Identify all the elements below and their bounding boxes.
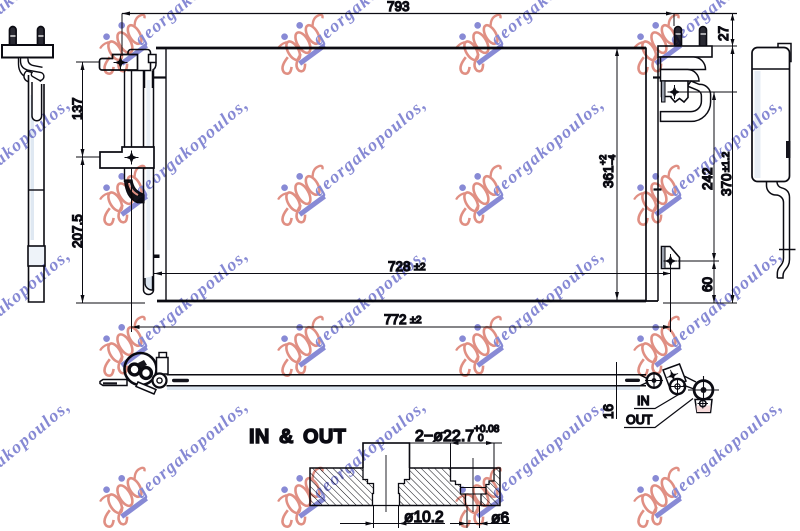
svg-text:IN: IN xyxy=(637,394,650,408)
svg-text:2−ø22.7: 2−ø22.7 xyxy=(415,428,474,445)
svg-text:georgakopoulos,: georgakopoulos, xyxy=(130,0,252,50)
svg-text:−4: −4 xyxy=(607,155,617,165)
svg-text:georgakopoulos,: georgakopoulos, xyxy=(0,395,74,502)
svg-text:georgakopoulos,: georgakopoulos, xyxy=(486,0,608,50)
svg-text:27: 27 xyxy=(716,26,731,41)
svg-text:georgakopoulos,: georgakopoulos, xyxy=(130,395,252,502)
svg-text:ø6: ø6 xyxy=(491,510,509,527)
svg-text:georgakopoulos,: georgakopoulos, xyxy=(664,0,786,50)
svg-text:OUT: OUT xyxy=(626,413,653,427)
svg-text:±2: ±2 xyxy=(410,314,422,326)
svg-text:60: 60 xyxy=(700,277,715,292)
svg-text:772: 772 xyxy=(384,312,407,327)
svg-text:0: 0 xyxy=(478,433,484,444)
svg-text:IN & OUT: IN & OUT xyxy=(249,426,346,448)
svg-text:207.5: 207.5 xyxy=(70,214,85,248)
svg-text:793: 793 xyxy=(387,0,410,14)
svg-text:370: 370 xyxy=(719,173,734,196)
svg-text:georgakopoulos,: georgakopoulos, xyxy=(664,395,786,502)
svg-text:georgakopoulos,: georgakopoulos, xyxy=(308,0,430,50)
svg-text:ø10.2: ø10.2 xyxy=(404,509,444,526)
svg-text:georgakopoulos,: georgakopoulos, xyxy=(486,395,608,502)
svg-text:361: 361 xyxy=(601,165,616,188)
